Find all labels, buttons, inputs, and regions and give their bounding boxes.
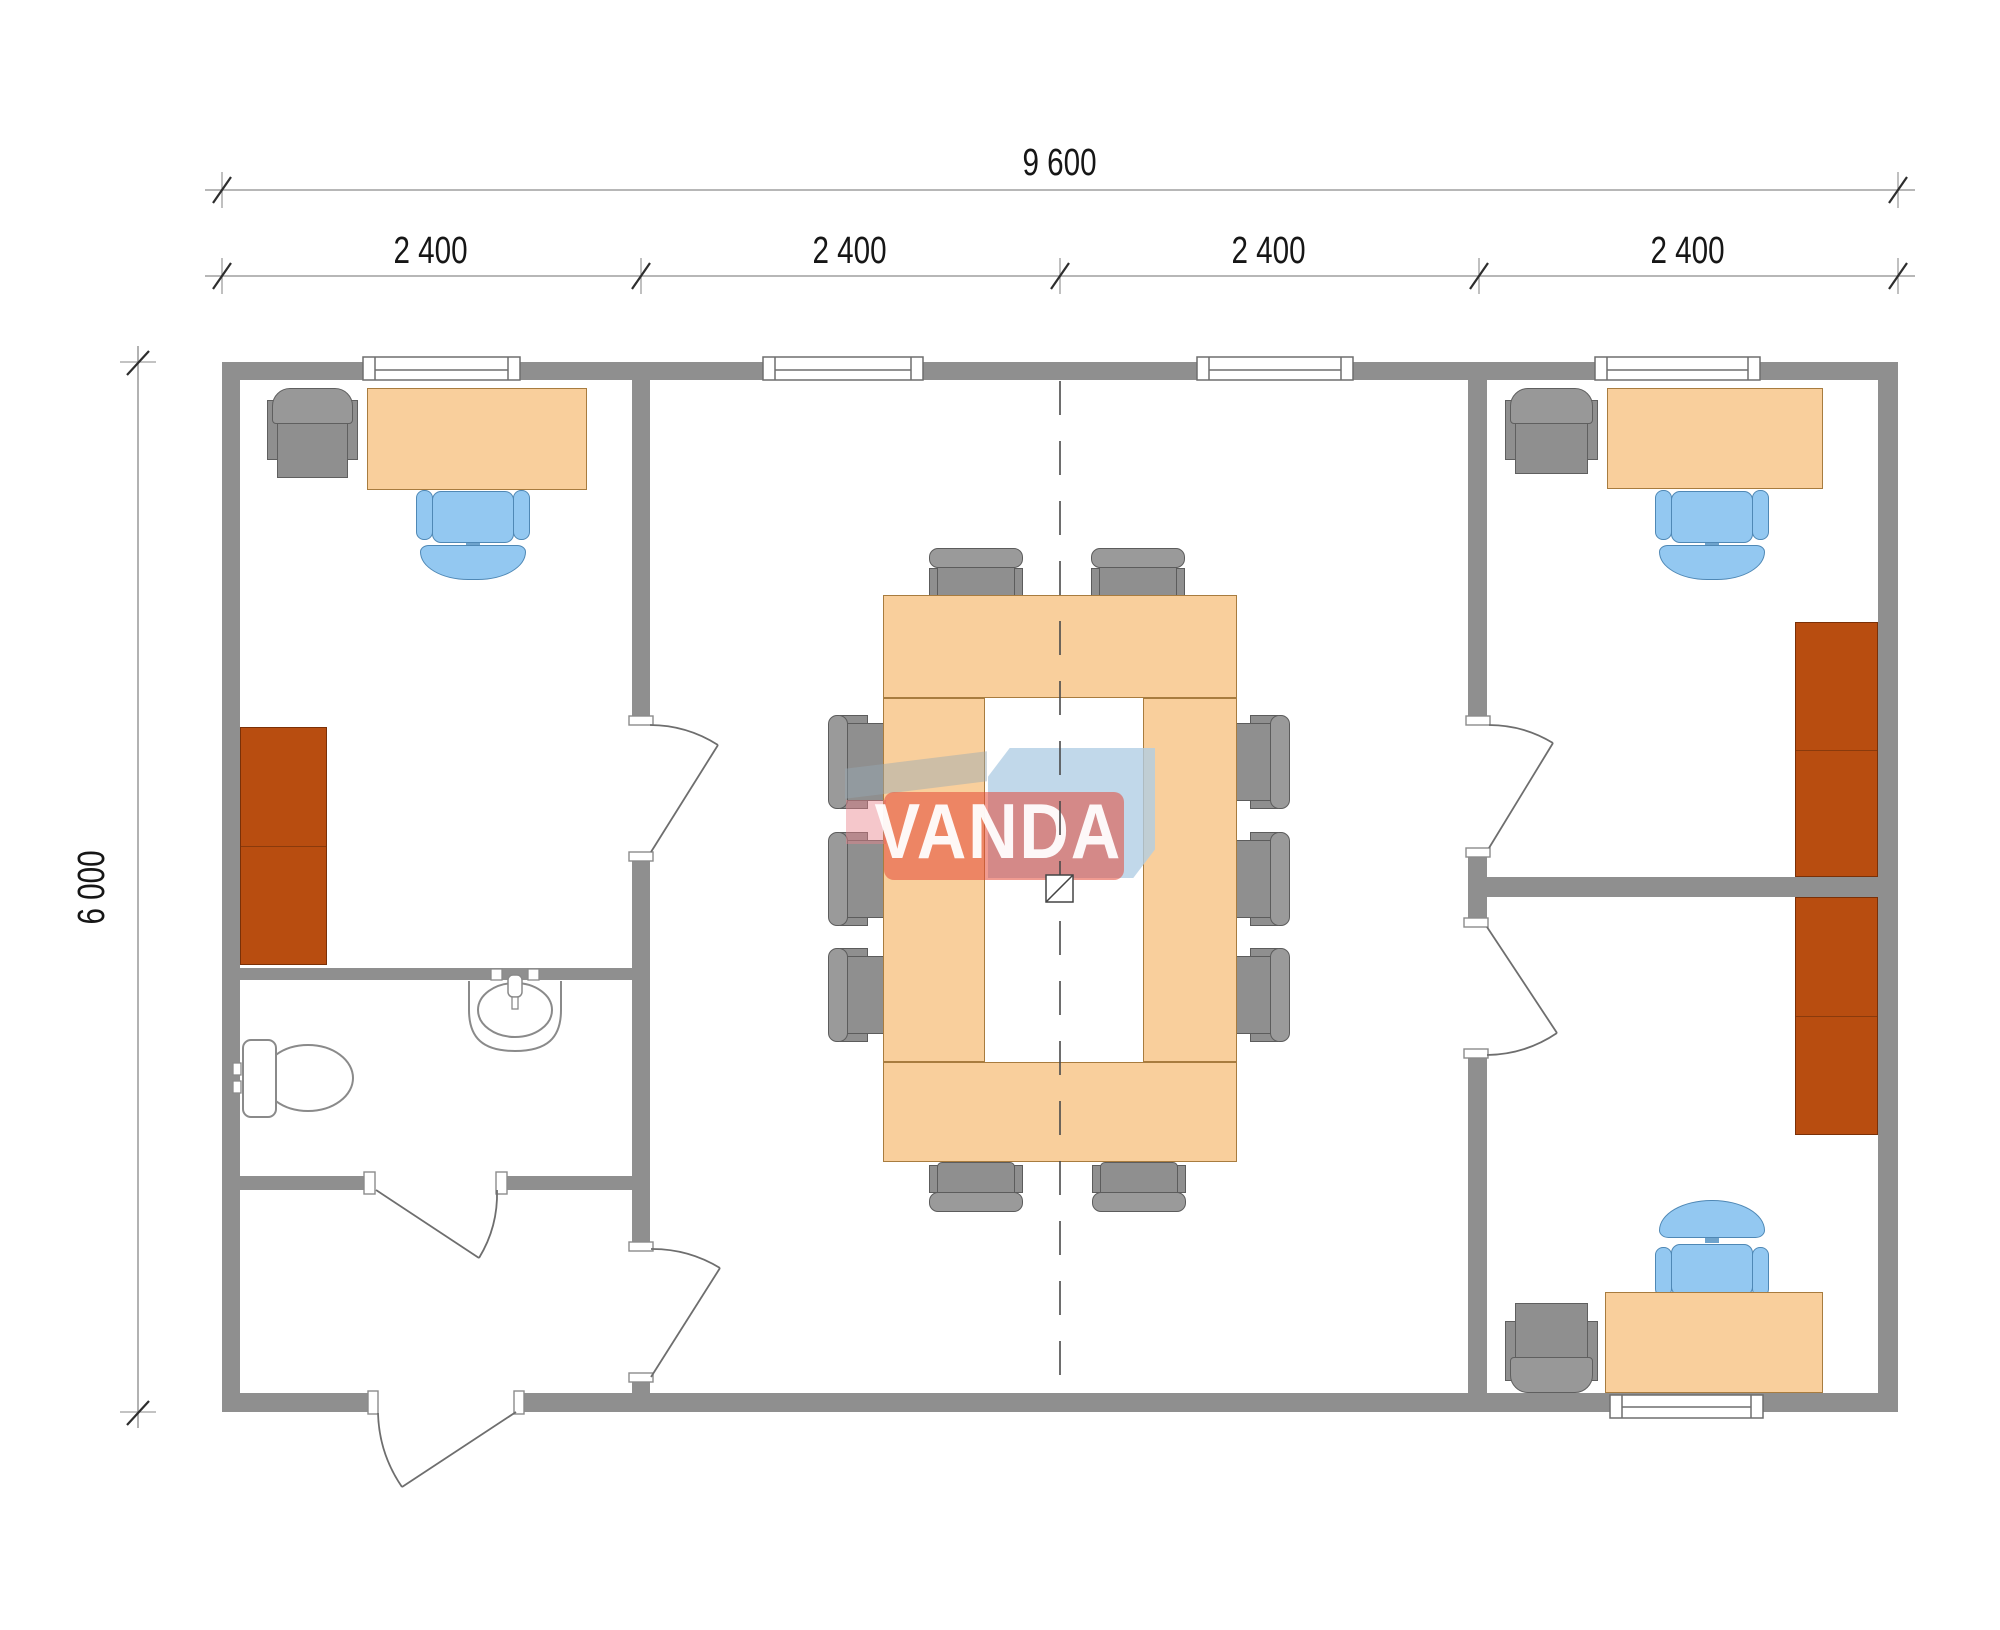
meeting-chair — [1230, 832, 1290, 926]
door-jamb — [629, 852, 653, 861]
wall-exterior-right — [1878, 362, 1898, 1412]
meeting-chair — [929, 548, 1023, 600]
armchair-top-left-office — [267, 388, 358, 478]
dimension-module-4: 2 400 — [1608, 230, 1768, 273]
wall-partition-right-upper — [1468, 380, 1487, 716]
door-jamb — [1464, 1049, 1488, 1058]
wall-right-offices-divider — [1487, 877, 1878, 897]
door-hallway — [651, 1249, 720, 1377]
meeting-chair — [1230, 948, 1290, 1042]
dimension-module-3: 2 400 — [1189, 230, 1349, 273]
armchair-top-right-office — [1505, 388, 1598, 474]
wall-bathroom-bottom-left — [240, 1176, 365, 1190]
meeting-chair — [828, 948, 888, 1042]
door-jamb — [1464, 918, 1488, 927]
door-jamb — [629, 1373, 653, 1382]
office-chair-bottom-right — [1655, 1200, 1769, 1302]
door-top-right-office — [1489, 725, 1553, 848]
desk-top-left-office — [367, 388, 587, 490]
wall-partition-left-lower-stub — [632, 1382, 650, 1393]
door-jamb — [1466, 848, 1490, 857]
toilet — [233, 1040, 353, 1117]
floor-plan: 9 600 2 400 2 400 2 400 2 400 6 000 — [0, 0, 2000, 1630]
dimension-overall-width: 9 600 — [940, 142, 1180, 185]
wall-bathroom-top — [240, 968, 650, 980]
armchair-bottom-right-office — [1505, 1303, 1598, 1393]
wall-partition-right-middle — [1468, 857, 1487, 918]
door-bathroom — [376, 1190, 497, 1258]
door-left-office — [650, 725, 718, 852]
cabinet-bottom-right-office — [1795, 897, 1878, 1135]
door-jamb — [629, 1242, 653, 1251]
dimension-module-2: 2 400 — [770, 230, 930, 273]
office-chair-top-left — [416, 488, 530, 582]
wall-exterior-bottom-left — [222, 1393, 378, 1412]
conference-table-right — [1143, 698, 1237, 1062]
meeting-chair — [1230, 715, 1290, 809]
wall-bathroom-bottom-right — [507, 1176, 650, 1190]
door-jamb — [496, 1172, 507, 1194]
door-jamb — [1466, 716, 1490, 725]
meeting-chair — [1091, 548, 1185, 600]
dimension-overall-height: 6 000 — [71, 804, 115, 970]
meeting-chair — [929, 1157, 1023, 1212]
door-bottom-right-office — [1487, 927, 1557, 1055]
door-jamb — [629, 716, 653, 725]
conference-table-bottom — [883, 1062, 1237, 1162]
office-chair-top-right — [1655, 488, 1769, 582]
desk-bottom-right-office — [1605, 1292, 1823, 1393]
meeting-chair — [1092, 1157, 1186, 1212]
sink — [469, 969, 561, 1051]
wall-exterior-left — [222, 362, 240, 1412]
cabinet-left-office — [240, 727, 327, 965]
conference-table-top — [883, 595, 1237, 698]
door-jamb — [364, 1172, 375, 1194]
wall-partition-left-upper — [632, 380, 650, 716]
door-entrance — [378, 1412, 516, 1487]
desk-top-right-office — [1607, 388, 1823, 489]
dimension-module-1: 2 400 — [351, 230, 511, 273]
wall-partition-right-lower — [1468, 1058, 1487, 1393]
wall-exterior-top — [222, 362, 1898, 380]
cabinet-top-right-office — [1795, 622, 1878, 877]
vanda-watermark-text: VANDA — [874, 790, 1113, 870]
wall-exterior-bottom-right — [515, 1393, 1898, 1412]
